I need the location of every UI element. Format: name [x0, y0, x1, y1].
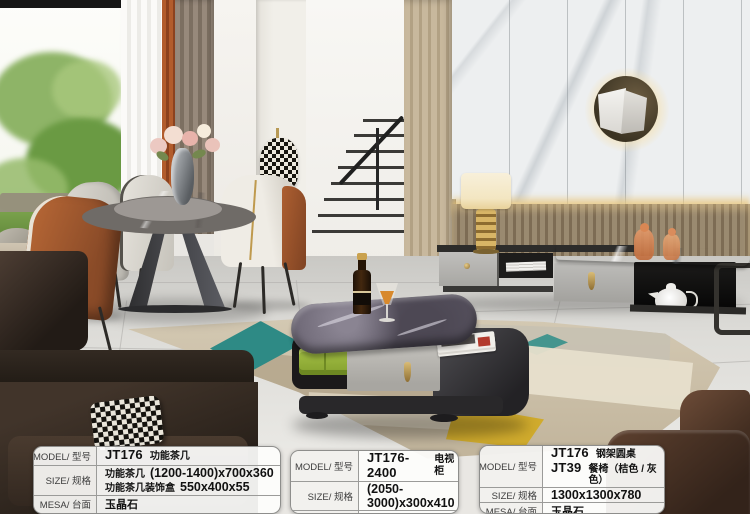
stair-tread: [338, 166, 406, 169]
model-label: MODEL/ 型号: [480, 446, 543, 487]
model-name: 功能茶几: [150, 451, 190, 463]
model-name: 电视柜: [434, 454, 458, 477]
size-row: SIZE/ 规格 (2050-3000)x300x410: [291, 482, 458, 511]
size-label: SIZE/ 规格: [480, 488, 543, 502]
mesa-label: MESA/ 台面: [34, 496, 97, 514]
coffee-table-foot: [430, 414, 458, 422]
magazine-red-spine: [478, 336, 491, 346]
size-row: SIZE/ 规格 功能茶几 (1200-1400)x700x360 功能茶几装饰…: [34, 466, 280, 496]
model-name: 钢架圆桌: [596, 449, 636, 461]
model-row: MODEL/ 型号 JT176 钢架圆桌 JT39 餐椅（桔色 / 灰色）: [480, 446, 664, 488]
table-lamp-shade: [461, 173, 511, 209]
size-item-name: 功能茶几装饰盒: [105, 483, 175, 495]
coffee-table-plinth: [299, 396, 503, 414]
whisky-bottle-label: [353, 291, 371, 305]
gold-knob: [464, 263, 470, 269]
teapot-lid: [666, 283, 676, 290]
magazines-in-niche: [506, 261, 546, 271]
lazy-susan: [113, 196, 223, 222]
flower: [197, 124, 211, 138]
tv-stand-loop-leg: [714, 263, 750, 335]
size-item-value: 550x400x55: [180, 480, 250, 494]
flower-vase: [171, 148, 194, 205]
model-code: JT176: [551, 446, 589, 461]
spec-table-tv-cabinet: MODEL/ 型号 JT176- 2400 电视柜 SIZE/ 规格 (2050…: [290, 450, 459, 514]
stair-tread: [312, 230, 406, 233]
flower: [205, 138, 220, 152]
model-code: JT176- 2400: [367, 451, 427, 481]
whisky-bottle-cap: [357, 253, 367, 260]
tree-foliage: [52, 60, 122, 120]
flower: [182, 131, 198, 146]
mesa-value: 玉晶石: [551, 503, 664, 514]
mesa-row: MESA/ 台面 玉晶石: [34, 496, 280, 514]
table-lamp-foot: [473, 249, 499, 254]
stair-tread: [324, 198, 406, 201]
size-item-value: (1200-1400)x700x360: [150, 466, 274, 480]
stair-rail-post: [376, 128, 379, 210]
wine-glass-stem: [386, 304, 388, 319]
model-label: MODEL/ 型号: [291, 451, 359, 481]
catalog-page: MODEL/ 型号 JT176 功能茶几 SIZE/ 规格 功能茶几 (1200…: [0, 0, 750, 514]
coffee-table-foot: [306, 412, 328, 419]
spec-table-dining-set: MODEL/ 型号 JT176 钢架圆桌 JT39 餐椅（桔色 / 灰色） SI…: [479, 445, 665, 514]
chair-shadow: [228, 300, 310, 311]
model-code: JT39: [551, 461, 581, 476]
orange-vase-lid: [640, 223, 649, 232]
model-row: MODEL/ 型号 JT176- 2400 电视柜: [291, 451, 458, 482]
window-frame: [0, 0, 130, 8]
size-item-name: 功能茶几: [105, 469, 145, 481]
spec-table-coffee-table: MODEL/ 型号 JT176 功能茶几 SIZE/ 规格 功能茶几 (1200…: [33, 446, 281, 514]
size-label: SIZE/ 规格: [34, 466, 97, 495]
gold-pendant-handle: [404, 362, 411, 382]
model-name: 餐椅（桔色 / 灰色）: [588, 464, 664, 487]
sofa-armrest: [0, 251, 88, 351]
orange-glass-vase: [663, 234, 680, 260]
table-lamp-coil-base: [476, 209, 496, 251]
mesa-value: 玉晶石: [105, 496, 280, 512]
size-value: (2050-3000)x300x410: [367, 482, 458, 510]
size-label: SIZE/ 规格: [291, 482, 359, 510]
orange-glass-vase: [634, 229, 654, 260]
orange-vase-lid: [668, 228, 676, 236]
mesa-row: MESA/ 台面 玉晶石: [480, 503, 664, 514]
gold-pendant-handle: [588, 272, 595, 290]
wall-lamp-sculpture: [621, 90, 647, 134]
dining-chair-rust-side: [282, 186, 306, 270]
table-pedestal-foot: [118, 305, 232, 313]
tv-stand-plinth: [443, 286, 553, 292]
mesa-label: MESA/ 台面: [480, 503, 543, 514]
wine-glass-foot: [379, 318, 395, 322]
model-code: JT176: [105, 448, 143, 463]
model-label: MODEL/ 型号: [34, 447, 97, 465]
model-row: MODEL/ 型号 JT176 功能茶几: [34, 447, 280, 466]
stair-tread: [318, 214, 406, 217]
houndstooth-pillow: [89, 395, 164, 451]
size-value: 1300x1300x780: [551, 488, 664, 502]
tv-stand-drawer: [439, 252, 499, 286]
flower: [164, 126, 183, 144]
tray-divider: [324, 352, 326, 371]
size-row: SIZE/ 规格 1300x1300x780: [480, 488, 664, 503]
